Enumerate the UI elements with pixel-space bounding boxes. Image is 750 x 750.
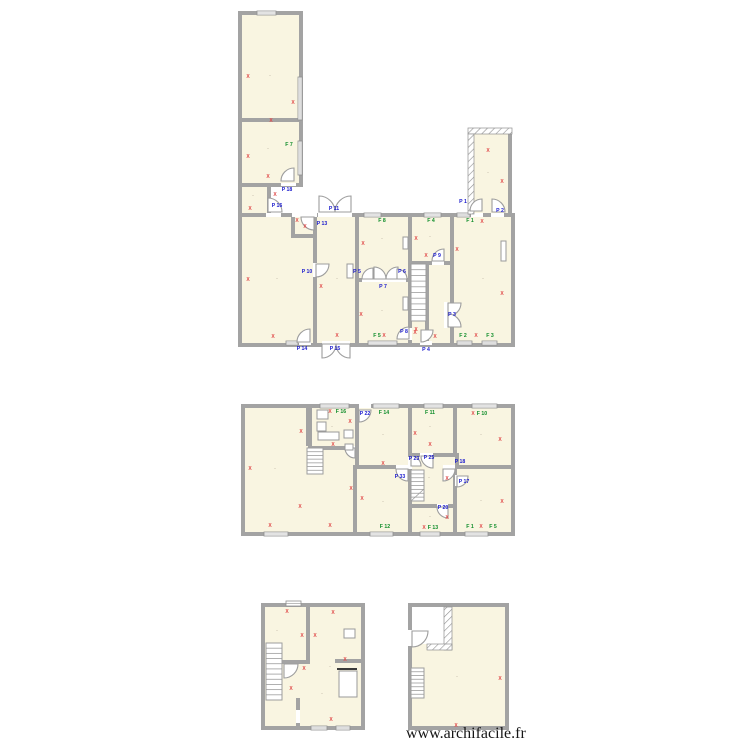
floor-plan-canvas: P 18P 16P 11P 13P 10P 14P 15P 5P 7P 6P 9… (0, 0, 750, 750)
fixture (403, 297, 408, 310)
door-opening (432, 261, 444, 265)
door-label: P 15 (330, 346, 341, 352)
door-opening (281, 183, 296, 186)
door-opening (396, 465, 408, 469)
floor-plan-page: P 18P 16P 11P 13P 10P 14P 15P 5P 7P 6P 9… (0, 0, 750, 750)
window-label: F 14 (379, 410, 389, 416)
window-label: F 3 (486, 333, 494, 339)
fixture (345, 444, 353, 450)
fixture (344, 629, 355, 638)
door-label: P 18 (455, 459, 466, 465)
door-label: P 10 (302, 269, 313, 275)
window-label: F 8 (378, 218, 386, 224)
door-label: P 18 (282, 187, 293, 193)
door-label: P 13 (317, 221, 328, 227)
door-label: P 14 (297, 346, 308, 352)
window-label: F 4 (427, 218, 435, 224)
staircase (266, 643, 282, 700)
room (240, 185, 269, 215)
fixture (318, 432, 339, 440)
door-label: P 20 (438, 505, 449, 511)
plan-annex-left: XXXXXXXX--- (263, 601, 363, 730)
door-label: P 16 (272, 203, 283, 209)
plan-upper-floor: P 22P 23P 25P 18P 17P 20P 33F 16F 14F 11… (243, 404, 513, 536)
window-label: F 2 (459, 333, 467, 339)
door-opening (296, 710, 300, 723)
plan-main-floor: P 18P 16P 11P 13P 10P 14P 15P 5P 7P 6P 9… (240, 11, 513, 358)
outlet-mark: X (273, 192, 277, 198)
wall-segment (335, 659, 363, 663)
window-label: F 10 (477, 411, 487, 417)
fixture (501, 241, 506, 261)
door-label: P 23 (409, 456, 420, 462)
door-label: P 17 (459, 479, 470, 485)
window-label: F 5 (489, 524, 497, 530)
door-label: P 2 (496, 208, 504, 214)
door-label: P 4 (422, 347, 430, 353)
door-label: P 33 (395, 474, 406, 480)
window-label: F 12 (380, 524, 390, 530)
counter-edge (337, 668, 357, 670)
wall-segment (306, 406, 310, 446)
hatched-wall (444, 607, 452, 650)
fixture (347, 264, 353, 278)
fixture (317, 422, 326, 431)
window-label: F 1 (466, 218, 474, 224)
fixture (403, 237, 408, 249)
hatched-wall (468, 128, 512, 134)
door-label: P 11 (329, 206, 339, 212)
window-label: F 13 (428, 525, 438, 531)
floor-plans-group: P 18P 16P 11P 13P 10P 14P 15P 5P 7P 6P 9… (240, 11, 513, 730)
watermark: www.archifacile.fr (406, 725, 526, 743)
door-label: P 8 (400, 329, 408, 335)
door-opening (443, 465, 455, 469)
door-label: P 25 (424, 455, 435, 461)
door-label: P 3 (448, 312, 456, 318)
door-label: P 1 (459, 199, 467, 205)
fixture (339, 671, 357, 697)
door-opening (318, 213, 352, 217)
door-label: P 6 (398, 269, 406, 275)
window-label: F 7 (285, 142, 293, 148)
door-label: P 5 (353, 269, 361, 275)
plan-annex-right: XX- (408, 605, 507, 729)
window-label: F 11 (425, 410, 435, 416)
window-label: F 16 (336, 409, 346, 415)
wall-segment (281, 660, 310, 664)
window-label: F 5 (373, 333, 381, 339)
hatched-wall (427, 644, 452, 650)
door-opening (266, 213, 281, 217)
door-label: P 9 (433, 253, 441, 259)
door-opening (359, 404, 371, 408)
door-opening (408, 630, 412, 646)
door-opening (292, 213, 317, 217)
fixture (317, 410, 328, 419)
door-label: P 22 (360, 411, 371, 417)
fixture (344, 430, 353, 438)
hatched-wall (468, 134, 474, 214)
wall-segment (306, 605, 310, 664)
window-label: F 1 (466, 524, 474, 530)
door-label: P 7 (379, 284, 387, 290)
